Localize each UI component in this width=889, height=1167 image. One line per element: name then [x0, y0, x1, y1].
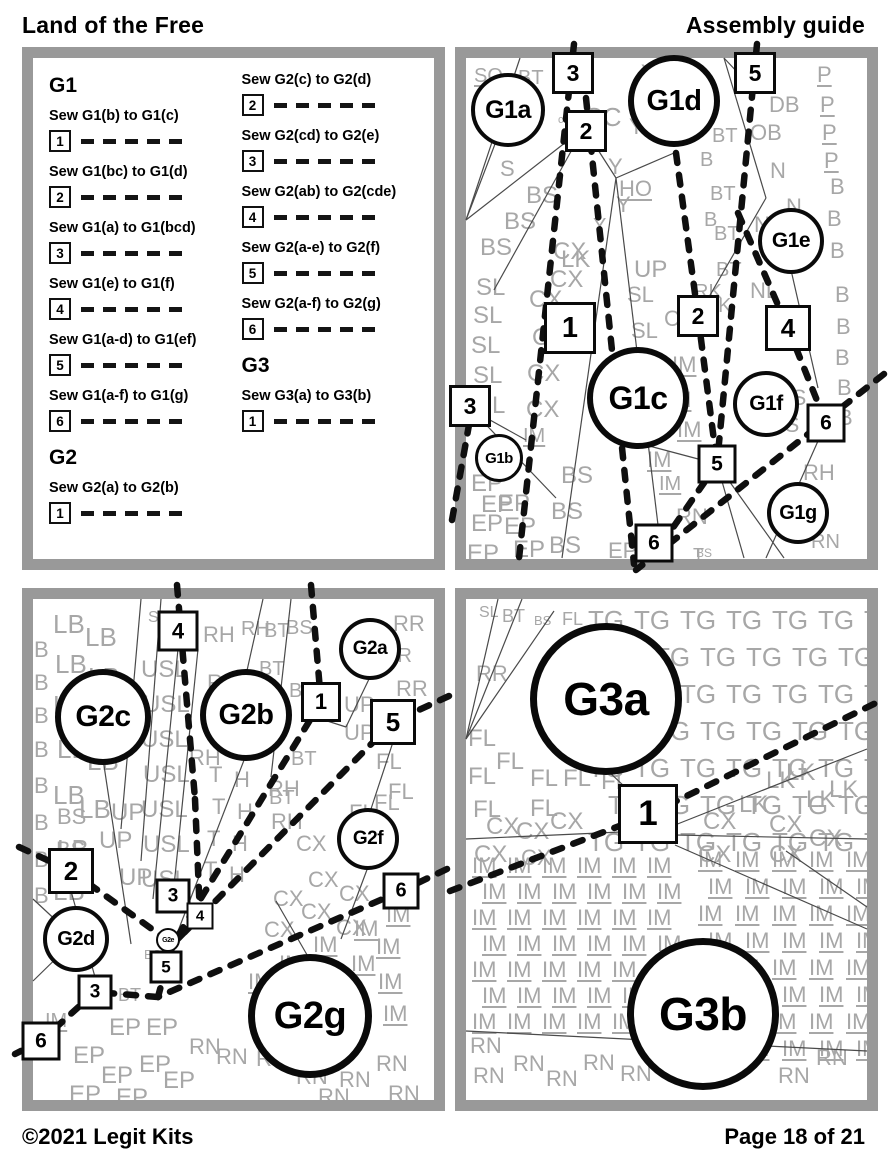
dashed-seam-sample [81, 139, 183, 144]
seam-number-box: 6 [807, 404, 846, 443]
section-circle-g3a: G3a [530, 623, 682, 775]
seam-number-box: 2 [48, 848, 94, 894]
sew-step-text: Sew G2(a-e) to G2(f) [242, 240, 419, 256]
dashed-seam-sample [81, 363, 183, 368]
dashed-seam-sample [81, 195, 183, 200]
section-circle-g2b: G2b [200, 669, 292, 761]
seam-number-box: 4 [158, 611, 199, 652]
seam-number-box: 1 [301, 682, 341, 722]
dashed-seam-sample [274, 271, 376, 276]
seam-number-box: 3 [78, 975, 113, 1010]
section-circle-g1e: G1e [758, 208, 824, 274]
sew-step-key: 3 [49, 242, 226, 264]
seam-number-box: 3 [156, 879, 191, 914]
instructions-column-2: Sew G2(c) to G2(d)2Sew G2(cd) to G2(e)3S… [242, 72, 419, 545]
sew-step: Sew G2(a-e) to G2(f)5 [242, 240, 419, 284]
diagram-panel-g3: SLBTBSFLRRLKLKLKLKLKFLFLFLFLFLFLFLFLCXCX… [455, 588, 878, 1111]
seam-number-box: 5 [370, 699, 416, 745]
sew-step-key: 6 [49, 410, 226, 432]
section-circle-g2e: G2e [156, 928, 180, 952]
section-circle-g1c: G1c [587, 347, 689, 449]
sew-step-text: Sew G1(bc) to G1(d) [49, 164, 226, 180]
diagram-marks: G3aG3b1 [466, 599, 867, 1100]
diagram-panel-g1: SOBTYYYYYYCCccBSSBSBSBSHOSLSLSLSLSLLKUPC… [455, 47, 878, 570]
seam-number-box: 4 [765, 305, 811, 351]
seam-number-box: 1 [544, 302, 596, 354]
section-circle-g1d: G1d [628, 55, 720, 147]
sew-step: Sew G1(a-f) to G1(g)6 [49, 388, 226, 432]
dashed-seam-sample [81, 307, 183, 312]
seam-number-box: 3 [552, 52, 594, 94]
copyright-text: ©2021 Legit Kits [22, 1124, 194, 1150]
seam-number-box: 2 [565, 110, 607, 152]
sew-step-key: 6 [242, 318, 419, 340]
sew-step-key: 1 [242, 410, 419, 432]
step-number-box: 3 [242, 150, 264, 172]
section-circle-g1b: G1b [475, 434, 523, 482]
section-circle-g2g: G2g [248, 954, 372, 1078]
dashed-seam-sample [274, 327, 376, 332]
diagram-marks: G1aG1dG1eG1cG1bG1fG1g3251243656 [466, 58, 867, 559]
step-number-box: 4 [49, 298, 71, 320]
seam-number-box: 5 [698, 445, 737, 484]
sew-step: Sew G1(e) to G1(f)4 [49, 276, 226, 320]
seam-number-box: 3 [449, 385, 491, 427]
instructions-columns: G1Sew G1(b) to G1(c)1Sew G1(bc) to G1(d)… [33, 58, 434, 559]
sew-step-key: 5 [49, 354, 226, 376]
section-circle-g1f: G1f [733, 371, 799, 437]
sew-step-key: 1 [49, 502, 226, 524]
sew-step: Sew G2(ab) to G2(cde)4 [242, 184, 419, 228]
sew-step: Sew G1(b) to G1(c)1 [49, 108, 226, 152]
seam-number-box: 6 [635, 524, 674, 563]
section-heading-g3: G3 [242, 354, 419, 378]
sew-step: Sew G3(a) to G3(b)1 [242, 388, 419, 432]
seam-number-box: 5 [734, 52, 776, 94]
seam-number-box: 4 [187, 903, 214, 930]
step-number-box: 2 [49, 186, 71, 208]
seam-number-box: 6 [22, 1022, 61, 1061]
page-number: Page 18 of 21 [724, 1124, 865, 1150]
sew-step-key: 4 [49, 298, 226, 320]
sew-step-key: 4 [242, 206, 419, 228]
dashed-seam-sample [81, 251, 183, 256]
sew-step: Sew G2(cd) to G2(e)3 [242, 128, 419, 172]
step-number-box: 2 [242, 94, 264, 116]
section-circle-g2f: G2f [337, 808, 399, 870]
section-circle-g1g: G1g [767, 482, 829, 544]
dashed-seam-sample [81, 419, 183, 424]
dashed-seam-sample [274, 215, 376, 220]
section-heading-g2: G2 [49, 446, 226, 470]
step-number-box: 1 [242, 410, 264, 432]
sew-step-text: Sew G1(a-f) to G1(g) [49, 388, 226, 404]
sew-step: Sew G2(a) to G2(b)1 [49, 480, 226, 524]
page-subtitle: Assembly guide [686, 12, 865, 39]
step-number-box: 3 [49, 242, 71, 264]
instructions-column-1: G1Sew G1(b) to G1(c)1Sew G1(bc) to G1(d)… [49, 72, 226, 545]
sew-step-text: Sew G1(a-d) to G1(ef) [49, 332, 226, 348]
step-number-box: 4 [242, 206, 264, 228]
sew-step-text: Sew G1(e) to G1(f) [49, 276, 226, 292]
sew-step: Sew G2(c) to G2(d)2 [242, 72, 419, 116]
seam-number-box: 5 [150, 951, 183, 984]
sew-step-key: 3 [242, 150, 419, 172]
page-title: Land of the Free [22, 12, 204, 39]
assembly-guide-page: Land of the Free Assembly guide G1Sew G1… [0, 0, 889, 1167]
sew-step: Sew G2(a-f) to G2(g)6 [242, 296, 419, 340]
dashed-seam-sample [274, 419, 376, 424]
sew-step-text: Sew G2(cd) to G2(e) [242, 128, 419, 144]
sew-step-key: 1 [49, 130, 226, 152]
sew-step-text: Sew G2(a-f) to G2(g) [242, 296, 419, 312]
diagram-panel-g2: LBLBLBLBLBLBLBLBLBLBLBLBBBBBBBBBSLRHRHRH… [22, 588, 445, 1111]
sew-step-text: Sew G2(c) to G2(d) [242, 72, 419, 88]
step-number-box: 5 [49, 354, 71, 376]
sew-step-key: 5 [242, 262, 419, 284]
sew-step-key: 2 [49, 186, 226, 208]
section-circle-g2c: G2c [55, 669, 151, 765]
section-circle-g2d: G2d [43, 906, 109, 972]
dashed-seam-sample [274, 103, 376, 108]
dashed-seam-sample [274, 159, 376, 164]
sew-step-text: Sew G2(ab) to G2(cde) [242, 184, 419, 200]
seam-number-box: 6 [383, 873, 420, 910]
sew-step-key: 2 [242, 94, 419, 116]
section-heading-g1: G1 [49, 74, 226, 98]
sew-step-text: Sew G3(a) to G3(b) [242, 388, 419, 404]
sew-step: Sew G1(bc) to G1(d)2 [49, 164, 226, 208]
section-circle-g3b: G3b [627, 938, 779, 1090]
step-number-box: 1 [49, 130, 71, 152]
step-number-box: 6 [242, 318, 264, 340]
section-circle-g1a: G1a [471, 73, 545, 147]
sew-step-text: Sew G2(a) to G2(b) [49, 480, 226, 496]
sew-step: Sew G1(a) to G1(bcd)3 [49, 220, 226, 264]
section-circle-g2a: G2a [339, 618, 401, 680]
sew-step-text: Sew G1(a) to G1(bcd) [49, 220, 226, 236]
seam-number-box: 1 [618, 784, 678, 844]
sew-step-text: Sew G1(b) to G1(c) [49, 108, 226, 124]
sew-step: Sew G1(a-d) to G1(ef)5 [49, 332, 226, 376]
seam-number-box: 2 [677, 295, 719, 337]
diagram-marks: G2cG2bG2aG2fG2dG2eG2g4152345366 [33, 599, 434, 1100]
step-number-box: 6 [49, 410, 71, 432]
dashed-seam-sample [81, 511, 183, 516]
step-number-box: 1 [49, 502, 71, 524]
step-number-box: 5 [242, 262, 264, 284]
instructions-panel: G1Sew G1(b) to G1(c)1Sew G1(bc) to G1(d)… [22, 47, 445, 570]
